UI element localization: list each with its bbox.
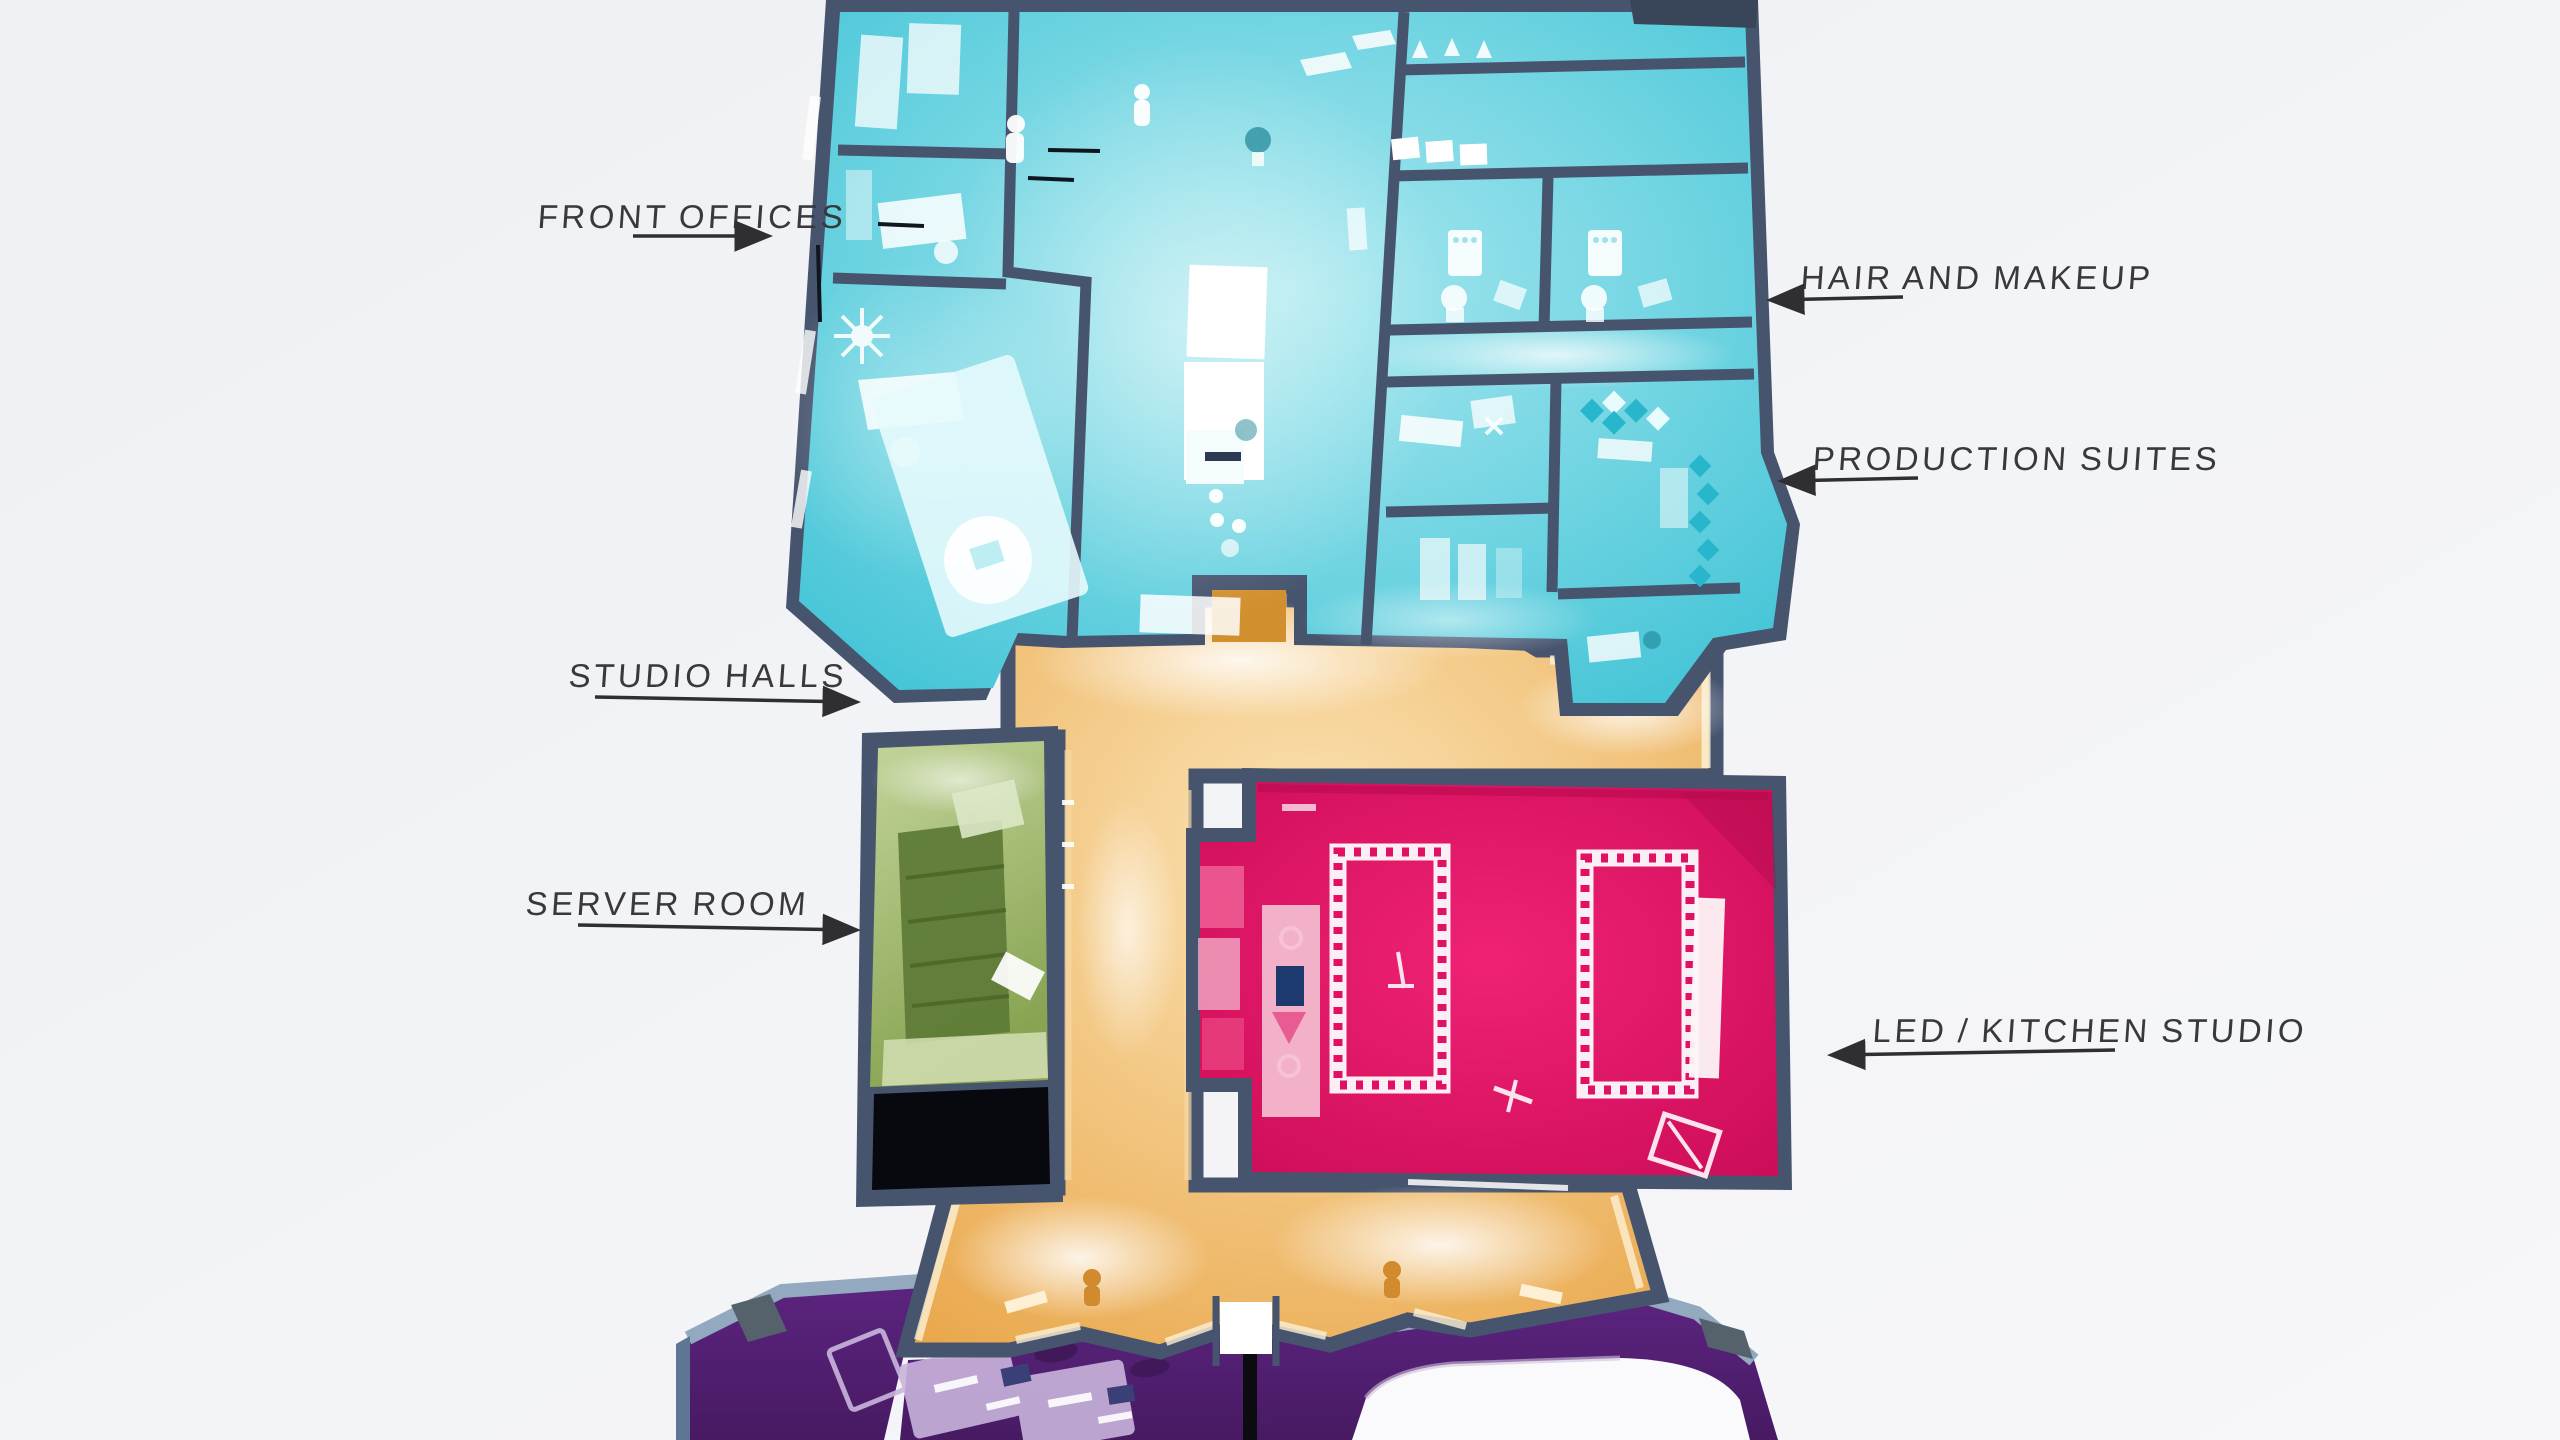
hair-and-makeup-label: HAIR AND MAKEUP xyxy=(1799,260,2154,297)
label-production-suites: PRODUCTION SUITES xyxy=(1784,441,2222,481)
kitchen-nook-counters xyxy=(1198,866,1244,1070)
production-suites-label: PRODUCTION SUITES xyxy=(1811,441,2221,478)
roof-band xyxy=(1630,0,1758,28)
reception-desk xyxy=(1184,265,1268,484)
label-led-kitchen-studio: LED / KITCHEN STUDIO xyxy=(1834,1013,2308,1055)
black-room xyxy=(872,1087,1050,1190)
wall-side-left xyxy=(676,1336,690,1440)
server-desk xyxy=(882,1032,1048,1086)
label-front-offices: FRONT OFFICES xyxy=(536,199,847,236)
led-kitchen-studio-area xyxy=(1186,768,1792,1190)
server-room-area xyxy=(856,726,1063,1207)
label-hair-and-makeup: HAIR AND MAKEUP xyxy=(1773,260,2155,300)
led-kitchen-studio-label: LED / KITCHEN STUDIO xyxy=(1871,1013,2308,1050)
front-offices-label: FRONT OFFICES xyxy=(536,199,847,236)
server-racks xyxy=(898,820,1010,1044)
backdrop-screen xyxy=(1689,898,1725,1079)
server-room-label: SERVER ROOM xyxy=(524,886,810,923)
kitchen-island xyxy=(1262,905,1320,1117)
floorplan-scene: FRONT OFFICES HAIR AND MAKEUP PRODUCTION… xyxy=(0,0,2560,1440)
lobby-mat xyxy=(1139,594,1240,635)
black-gap xyxy=(1243,1340,1257,1440)
studio-halls-label: STUDIO HALLS xyxy=(567,658,848,695)
